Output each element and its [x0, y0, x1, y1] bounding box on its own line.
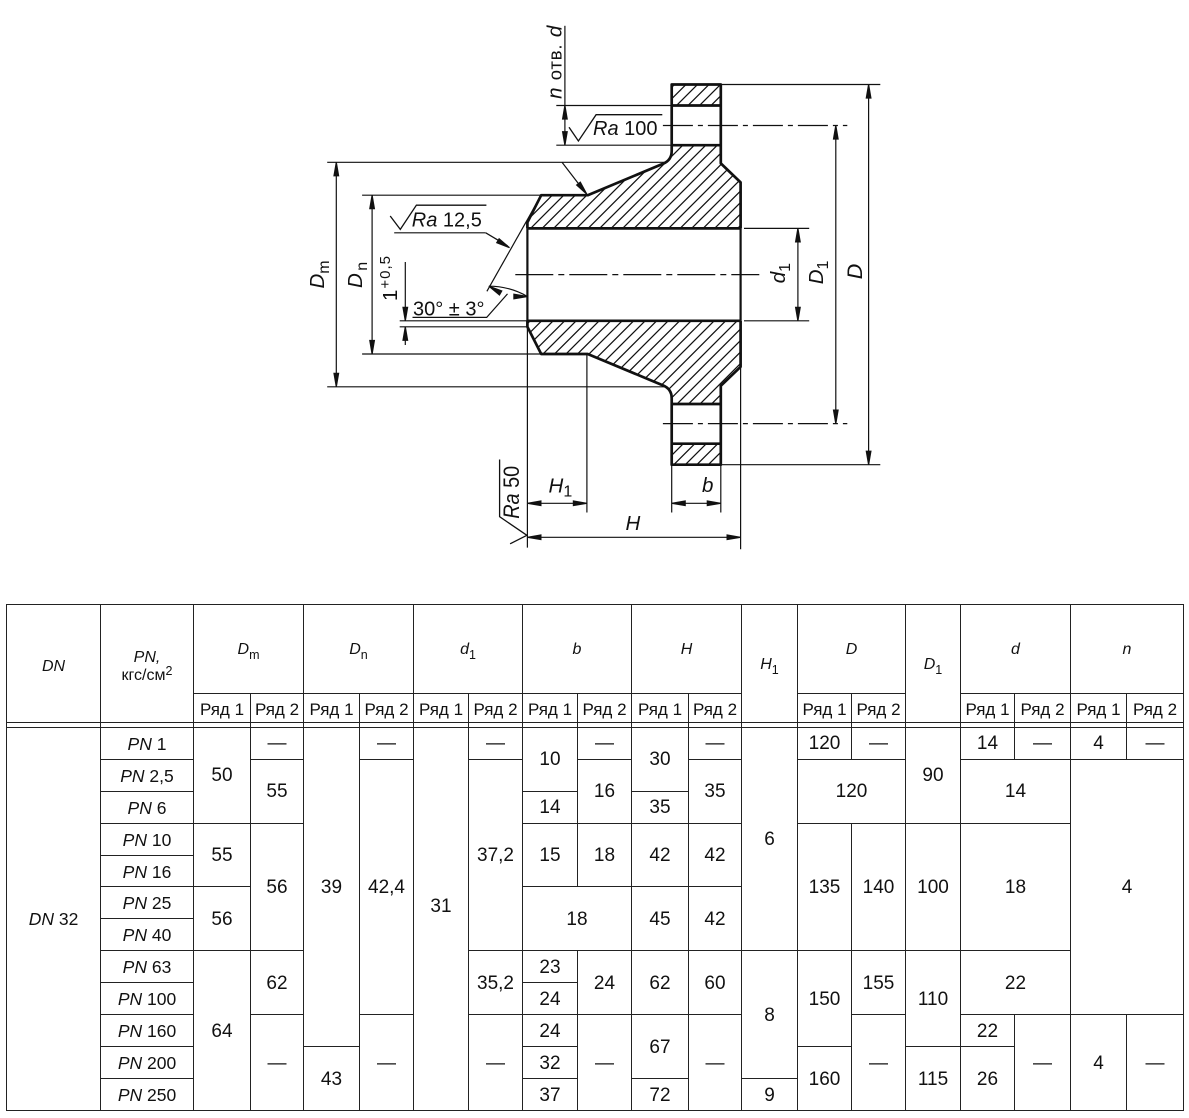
- svg-text:b: b: [702, 474, 713, 497]
- svg-text:1+0,5: 1+0,5: [377, 255, 402, 301]
- svg-text:H: H: [626, 512, 641, 535]
- svg-text:Ra 50: Ra 50: [499, 466, 524, 519]
- svg-text:Dn: Dn: [344, 259, 371, 288]
- svg-text:D: D: [843, 264, 867, 280]
- svg-text:d1: d1: [767, 263, 794, 283]
- svg-text:Ra 12,5: Ra 12,5: [412, 210, 482, 232]
- svg-text:n отв. d: n отв. d: [544, 25, 567, 99]
- svg-text:Ra 100: Ra 100: [593, 118, 658, 140]
- svg-text:H1: H1: [549, 475, 573, 501]
- svg-text:30° ± 3°: 30° ± 3°: [413, 298, 484, 320]
- svg-text:Dm: Dm: [306, 260, 333, 288]
- svg-text:D1: D1: [805, 260, 832, 284]
